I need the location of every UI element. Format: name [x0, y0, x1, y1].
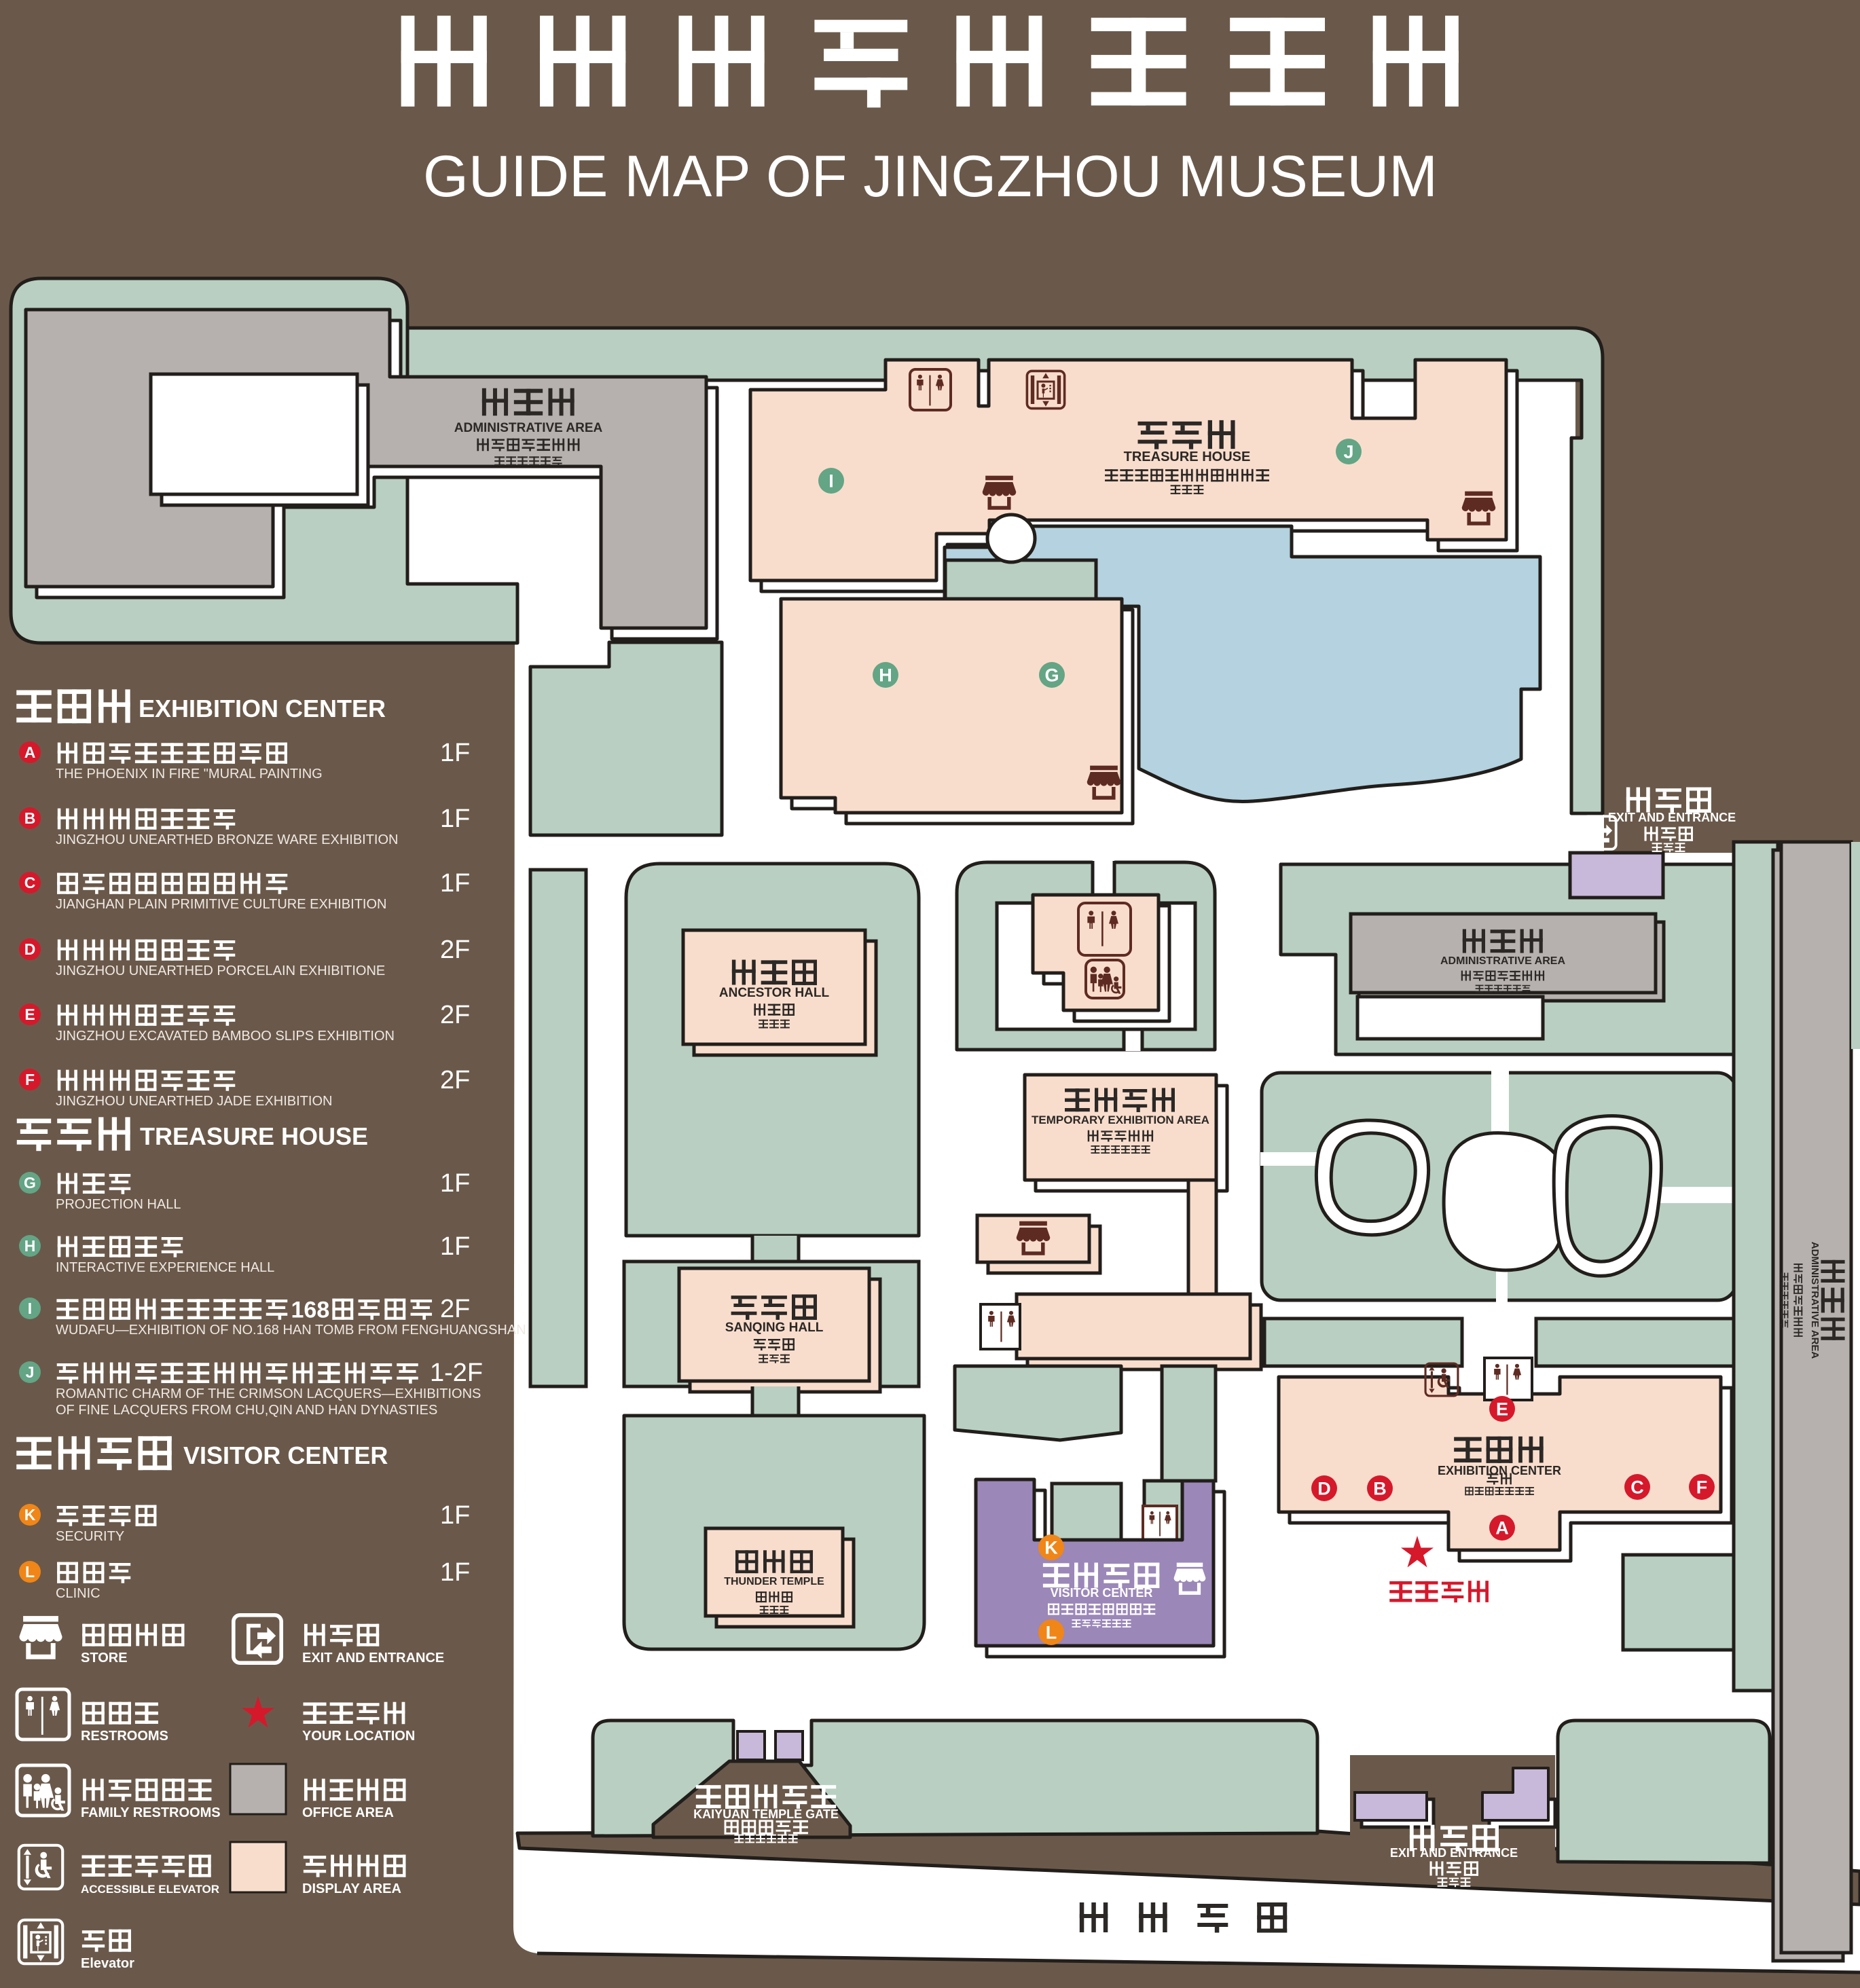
svg-text:RESTROOMS: RESTROOMS: [81, 1729, 168, 1744]
svg-text:D: D: [1317, 1478, 1331, 1498]
svg-text:E: E: [1496, 1399, 1508, 1419]
svg-text:2F: 2F: [440, 936, 470, 964]
svg-text:DISPLAY AREA: DISPLAY AREA: [302, 1881, 401, 1896]
svg-text:1F: 1F: [440, 1501, 470, 1530]
svg-text:168: 168: [291, 1297, 330, 1323]
svg-text:2F: 2F: [440, 1001, 470, 1029]
svg-text:F: F: [25, 1071, 35, 1088]
svg-text:2F: 2F: [440, 1066, 470, 1094]
svg-text:J: J: [1343, 442, 1353, 462]
svg-text:TEMPORARY EXHIBITION AREA: TEMPORARY EXHIBITION AREA: [1032, 1113, 1209, 1126]
svg-text:A: A: [1495, 1517, 1509, 1538]
svg-text:EXHIBITION CENTER: EXHIBITION CENTER: [1438, 1464, 1561, 1477]
svg-text:OF FINE LACQUERS FROM CHU,QIN: OF FINE LACQUERS FROM CHU,QIN AND HAN DY…: [56, 1403, 437, 1418]
svg-text:2F: 2F: [440, 1295, 470, 1323]
svg-text:EXIT AND ENTRANCE: EXIT AND ENTRANCE: [302, 1651, 444, 1665]
svg-text:EXIT AND ENTRANCE: EXIT AND ENTRANCE: [1390, 1846, 1518, 1860]
svg-text:F: F: [1696, 1477, 1708, 1497]
svg-text:C: C: [24, 874, 36, 891]
svg-text:L: L: [1046, 1622, 1057, 1642]
svg-text:TREASURE HOUSE: TREASURE HOUSE: [140, 1122, 368, 1150]
svg-text:THUNDER TEMPLE: THUNDER TEMPLE: [724, 1576, 824, 1587]
svg-text:K: K: [1044, 1537, 1058, 1558]
svg-text:WUDAFU—EXHIBITION OF NO.168 HA: WUDAFU—EXHIBITION OF NO.168 HAN TOMB FRO…: [56, 1323, 526, 1338]
svg-text:ACCESSIBLE ELEVATOR: ACCESSIBLE ELEVATOR: [81, 1883, 219, 1896]
svg-text:TREASURE HOUSE: TREASURE HOUSE: [1124, 449, 1251, 464]
svg-text:GUIDE MAP OF JINGZHOU MUSEUM: GUIDE MAP OF JINGZHOU MUSEUM: [423, 144, 1438, 209]
svg-text:1F: 1F: [440, 1169, 470, 1198]
svg-text:ANCESTOR HALL: ANCESTOR HALL: [719, 986, 830, 1000]
svg-text:I: I: [28, 1300, 32, 1317]
svg-text:J: J: [26, 1363, 35, 1381]
svg-text:JINGZHOU UNEARTHED PORCELAIN E: JINGZHOU UNEARTHED PORCELAIN EXHIBITIONE: [56, 963, 385, 978]
svg-text:B: B: [24, 809, 36, 827]
svg-text:H: H: [879, 665, 892, 686]
svg-text:1F: 1F: [440, 1232, 470, 1261]
svg-text:JIANGHAN PLAIN PRIMITIVE CULTU: JIANGHAN PLAIN PRIMITIVE CULTURE EXHIBIT…: [56, 897, 386, 912]
svg-text:ADMINISTRATIVE AREA: ADMINISTRATIVE AREA: [1440, 955, 1565, 967]
svg-text:C: C: [1630, 1477, 1644, 1497]
svg-text:K: K: [24, 1506, 36, 1524]
svg-text:JINGZHOU UNEARTHED BRONZE WARE: JINGZHOU UNEARTHED BRONZE WARE EXHIBITIO…: [56, 832, 398, 847]
svg-text:Elevator: Elevator: [81, 1956, 134, 1971]
svg-text:A: A: [24, 743, 36, 761]
svg-text:H: H: [24, 1237, 36, 1255]
svg-text:ADMINISTRATIVE AREA: ADMINISTRATIVE AREA: [1809, 1242, 1821, 1359]
svg-text:STORE: STORE: [81, 1651, 128, 1665]
svg-text:E: E: [24, 1006, 35, 1023]
svg-text:SANQING HALL: SANQING HALL: [725, 1321, 824, 1335]
svg-text:1F: 1F: [440, 805, 470, 833]
svg-text:D: D: [24, 940, 36, 958]
svg-text:SECURITY: SECURITY: [56, 1529, 124, 1544]
svg-text:1F: 1F: [440, 1558, 470, 1587]
svg-text:L: L: [25, 1563, 35, 1581]
svg-text:1F: 1F: [440, 869, 470, 898]
svg-text:B: B: [1373, 1478, 1387, 1498]
svg-text:OFFICE AREA: OFFICE AREA: [302, 1805, 394, 1820]
svg-text:INTERACTIVE EXPERIENCE HALL: INTERACTIVE EXPERIENCE HALL: [56, 1260, 274, 1275]
svg-text:KAIYUAN TEMPLE GATE: KAIYUAN TEMPLE GATE: [693, 1807, 839, 1821]
svg-text:FAMILY RESTROOMS: FAMILY RESTROOMS: [81, 1805, 221, 1820]
svg-text:CLINIC: CLINIC: [56, 1586, 101, 1601]
svg-text:VISITOR CENTER: VISITOR CENTER: [1051, 1586, 1153, 1600]
svg-text:JINGZHOU UNEARTHED JADE EXHIBI: JINGZHOU UNEARTHED JADE EXHIBITION: [56, 1094, 332, 1109]
svg-text:1F: 1F: [440, 739, 470, 767]
svg-text:VISITOR CENTER: VISITOR CENTER: [183, 1441, 388, 1469]
svg-text:PROJECTION HALL: PROJECTION HALL: [56, 1197, 181, 1212]
svg-text:EXHIBITION CENTER: EXHIBITION CENTER: [139, 695, 386, 722]
svg-text:YOUR LOCATION: YOUR LOCATION: [302, 1729, 415, 1744]
svg-text:I: I: [828, 471, 834, 492]
svg-text:ADMINISTRATIVE AREA: ADMINISTRATIVE AREA: [454, 421, 603, 435]
svg-text:G: G: [1044, 665, 1059, 686]
svg-text:1-2F: 1-2F: [430, 1359, 483, 1387]
svg-text:ROMANTIC CHARM OF THE CRIMSON: ROMANTIC CHARM OF THE CRIMSON LACQUERS—E…: [56, 1386, 481, 1401]
svg-text:G: G: [24, 1174, 36, 1192]
svg-text:EXIT AND ENTRANCE: EXIT AND ENTRANCE: [1608, 811, 1736, 824]
svg-text:JINGZHOU EXCAVATED BAMBOO SLIP: JINGZHOU EXCAVATED BAMBOO SLIPS EXHIBITI…: [56, 1029, 395, 1044]
svg-text:THE PHOENIX IN FIRE "MURAL PAI: THE PHOENIX IN FIRE "MURAL PAINTING: [56, 767, 323, 781]
